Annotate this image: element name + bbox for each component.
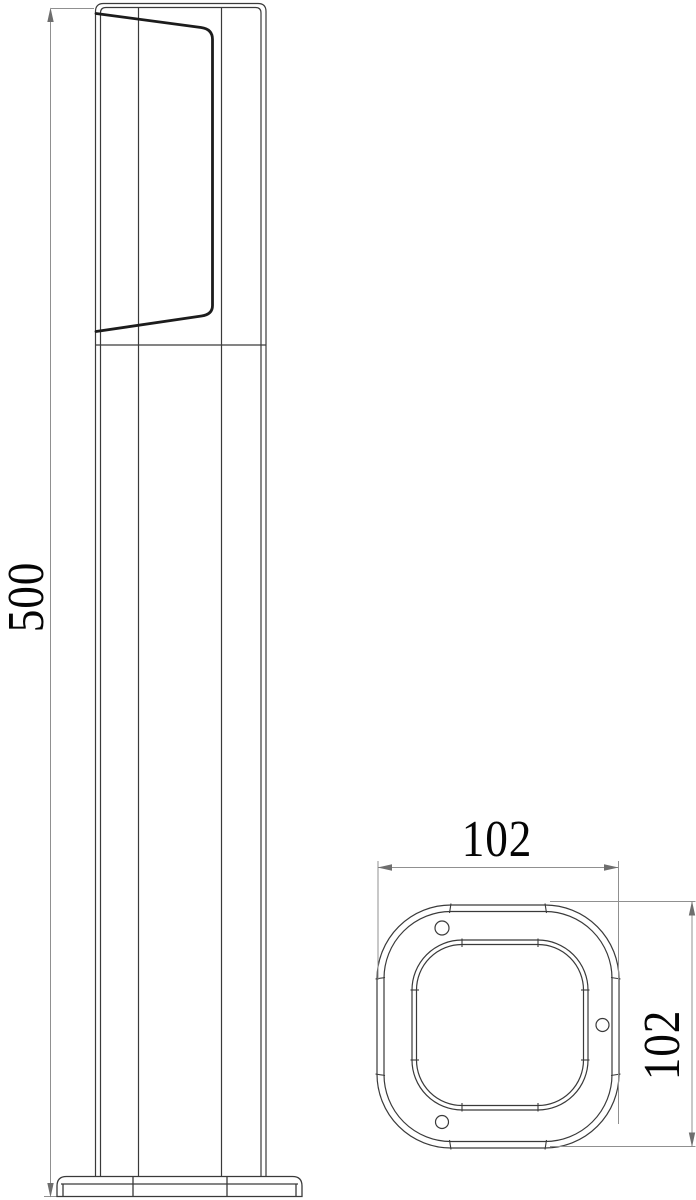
plan-inner-ring (412, 940, 588, 1110)
light-aperture-outline (96, 14, 213, 332)
front-height-dimension-value: 500 (0, 536, 55, 658)
post-outline (96, 345, 267, 1177)
lamp-head-outline (96, 4, 267, 346)
plan-width-dimension-value: 102 (436, 812, 558, 868)
base-plate-outline (57, 1177, 302, 1197)
plan-depth-dimension-value: 102 (635, 984, 691, 1106)
plan-width-dimension-lines (378, 861, 619, 1124)
plan-outer-ring (377, 905, 619, 1148)
technical-drawing-page: 500 102 102 (0, 0, 696, 1200)
technical-drawing-canvas (0, 0, 696, 1200)
